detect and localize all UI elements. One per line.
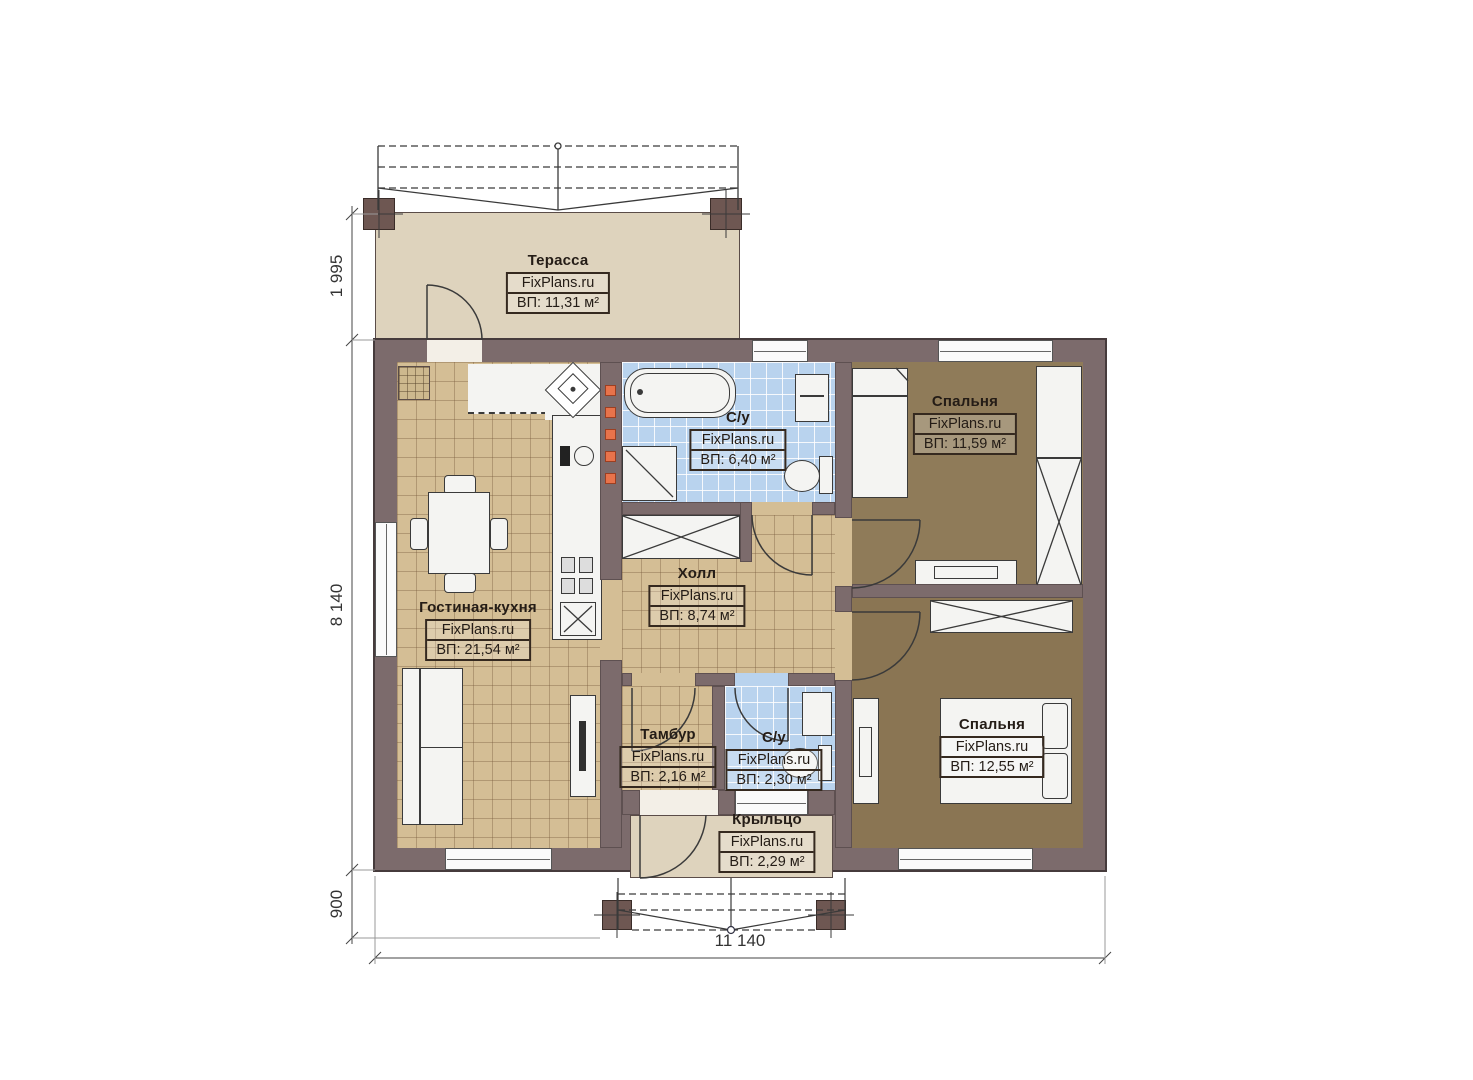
wall-bedrooms-middle (835, 586, 852, 612)
room-info-box: FixPlans.ru ВП: 8,74 м² (648, 585, 745, 627)
hall-wardrobe (622, 515, 740, 559)
window-living-bottom (445, 848, 552, 870)
opening-entrance-door (640, 790, 718, 815)
wall-entry-left (622, 790, 640, 815)
area-text: ВП: 11,59 м² (915, 433, 1015, 453)
area-text: ВП: 2,30 м² (727, 769, 820, 789)
opening-terrace-door (427, 340, 482, 362)
wall-between-bedrooms (852, 584, 1083, 598)
brand-text: FixPlans.ru (915, 415, 1015, 433)
dining-table (428, 492, 490, 574)
wall-hall-tambur-a (622, 673, 632, 686)
kitchen-pantry-mat (398, 366, 430, 400)
room-label-bedroom1: Спальня FixPlans.ru ВП: 11,59 м² (913, 393, 1017, 455)
room-label-bedroom2: Спальня FixPlans.ru ВП: 12,55 м² (939, 716, 1044, 778)
kitchen-dishwasher (560, 602, 596, 636)
bedroom1-dresser (915, 560, 1017, 586)
brand-text: FixPlans.ru (691, 431, 784, 449)
brand-text: FixPlans.ru (508, 274, 608, 292)
room-label-hall: Холл FixPlans.ru ВП: 8,74 м² (648, 565, 745, 627)
opening-bedroom2-door (835, 612, 852, 680)
room-label-living-kitchen: Гостиная-кухня FixPlans.ru ВП: 21,54 м² (419, 599, 537, 661)
dim-house-depth: 8 140 (327, 584, 347, 627)
dining-chair-left (410, 518, 428, 550)
pillow (1042, 703, 1068, 749)
dim-house-width: 11 140 (715, 931, 766, 951)
wall-bedrooms-lower (835, 680, 852, 848)
wall-marker (605, 429, 616, 440)
dining-chair-right (490, 518, 508, 550)
dresser-drawer (934, 566, 998, 579)
opening-bedroom1-door (835, 518, 852, 586)
area-text: ВП: 2,16 м² (621, 766, 714, 786)
porch-post-left (602, 900, 632, 930)
bathroom1-sink (795, 374, 829, 422)
bedroom2-dresser (853, 698, 879, 804)
bedroom2-wardrobe (930, 600, 1073, 633)
area-text: ВП: 6,40 м² (691, 449, 784, 469)
room-name: С/у (762, 729, 786, 746)
window-bathroom1 (752, 340, 808, 362)
room-info-box: FixPlans.ru ВП: 2,29 м² (718, 831, 815, 873)
pillow (1042, 753, 1068, 799)
room-info-box: FixPlans.ru ВП: 21,54 м² (425, 619, 530, 661)
opening-bathroom2-door (735, 673, 788, 686)
room-name: Терасса (528, 252, 589, 269)
kitchen-stove (560, 556, 596, 598)
wall-hall-tambur-b (695, 673, 735, 686)
opening-living-hall (600, 580, 622, 660)
tv-stand (570, 695, 596, 797)
terrace-post-left (363, 198, 395, 230)
brand-text: FixPlans.ru (727, 751, 820, 769)
room-name: Крыльцо (732, 811, 802, 828)
room-label-tambur: Тамбур FixPlans.ru ВП: 2,16 м² (619, 726, 716, 788)
terrace-post-right (710, 198, 742, 230)
wall-marker (605, 451, 616, 462)
brand-text: FixPlans.ru (941, 738, 1042, 756)
area-text: ВП: 21,54 м² (427, 639, 528, 659)
room-label-porch: Крыльцо FixPlans.ru ВП: 2,29 м² (718, 811, 815, 873)
wall-bathroom1-hall-right (812, 502, 835, 515)
bedroom1-bed (852, 368, 908, 498)
bedroom1-shelf (1036, 366, 1082, 458)
bathtub-drain (637, 389, 643, 395)
bedroom1-wardrobe (1036, 458, 1082, 586)
room-name: Гостиная-кухня (419, 599, 537, 616)
tv (579, 721, 586, 771)
stove-burner (561, 557, 575, 573)
opening-bathroom1-door (752, 502, 812, 515)
area-text: ВП: 2,29 м² (720, 851, 813, 871)
room-info-box: FixPlans.ru ВП: 2,30 м² (725, 749, 822, 791)
bed-pillow-line (853, 395, 907, 397)
wall-hall-tambur-c (788, 673, 835, 686)
shower (622, 446, 677, 501)
pergola-structure (378, 143, 738, 210)
bathtub-inner (630, 373, 730, 413)
floor-plan: Терасса FixPlans.ru ВП: 11,31 м² С/у Fix… (0, 0, 1473, 1080)
area-text: ВП: 11,31 м² (508, 292, 608, 312)
brand-text: FixPlans.ru (427, 621, 528, 639)
room-info-box: FixPlans.ru ВП: 6,40 м² (689, 429, 786, 471)
hob-control (560, 446, 570, 466)
window-bedroom2 (898, 848, 1033, 870)
hob-burner (574, 446, 594, 466)
room-name: Холл (678, 565, 716, 582)
stove-burner (561, 578, 575, 594)
porch-steps (618, 878, 845, 934)
toilet1-tank (819, 456, 833, 494)
room-info-box: FixPlans.ru ВП: 11,31 м² (506, 272, 610, 314)
stove-burner (579, 578, 593, 594)
wall-bathroom1-hall-left (622, 502, 752, 515)
wall-bedrooms-upper (835, 362, 852, 518)
wall-marker (605, 407, 616, 418)
area-text: ВП: 8,74 м² (650, 605, 743, 625)
brand-text: FixPlans.ru (720, 833, 813, 851)
area-text: ВП: 12,55 м² (941, 756, 1042, 776)
sofa (402, 668, 463, 825)
room-label-bathroom2: С/у FixPlans.ru ВП: 2,30 м² (725, 729, 822, 791)
dining-chair-bottom (444, 573, 476, 593)
wall-stub-hall (740, 502, 752, 562)
wall-marker (605, 473, 616, 484)
room-info-box: FixPlans.ru ВП: 11,59 м² (913, 413, 1017, 455)
room-name: Тамбур (640, 726, 696, 743)
window-living-left (375, 522, 397, 657)
room-info-box: FixPlans.ru ВП: 2,16 м² (619, 746, 716, 788)
dim-terrace-depth: 1 995 (327, 255, 347, 298)
dim-porch-depth: 900 (327, 890, 347, 918)
window-bedroom1 (938, 340, 1053, 362)
opening-tambur-door (632, 673, 695, 686)
room-info-box: FixPlans.ru ВП: 12,55 м² (939, 736, 1044, 778)
room-label-bathroom1: С/у FixPlans.ru ВП: 6,40 м² (689, 409, 786, 471)
toilet1-bowl (784, 460, 820, 492)
dresser-drawer (859, 727, 872, 777)
wall-marker (605, 385, 616, 396)
sink-line (800, 395, 824, 397)
room-name: Спальня (932, 393, 998, 410)
kitchen-hob (558, 440, 596, 474)
stove-burner (579, 557, 593, 573)
brand-text: FixPlans.ru (650, 587, 743, 605)
porch-post-right (816, 900, 846, 930)
room-name: С/у (726, 409, 750, 426)
room-name: Спальня (959, 716, 1025, 733)
brand-text: FixPlans.ru (621, 748, 714, 766)
sofa-cushion-line (419, 747, 462, 749)
room-label-terrace: Терасса FixPlans.ru ВП: 11,31 м² (506, 252, 610, 314)
